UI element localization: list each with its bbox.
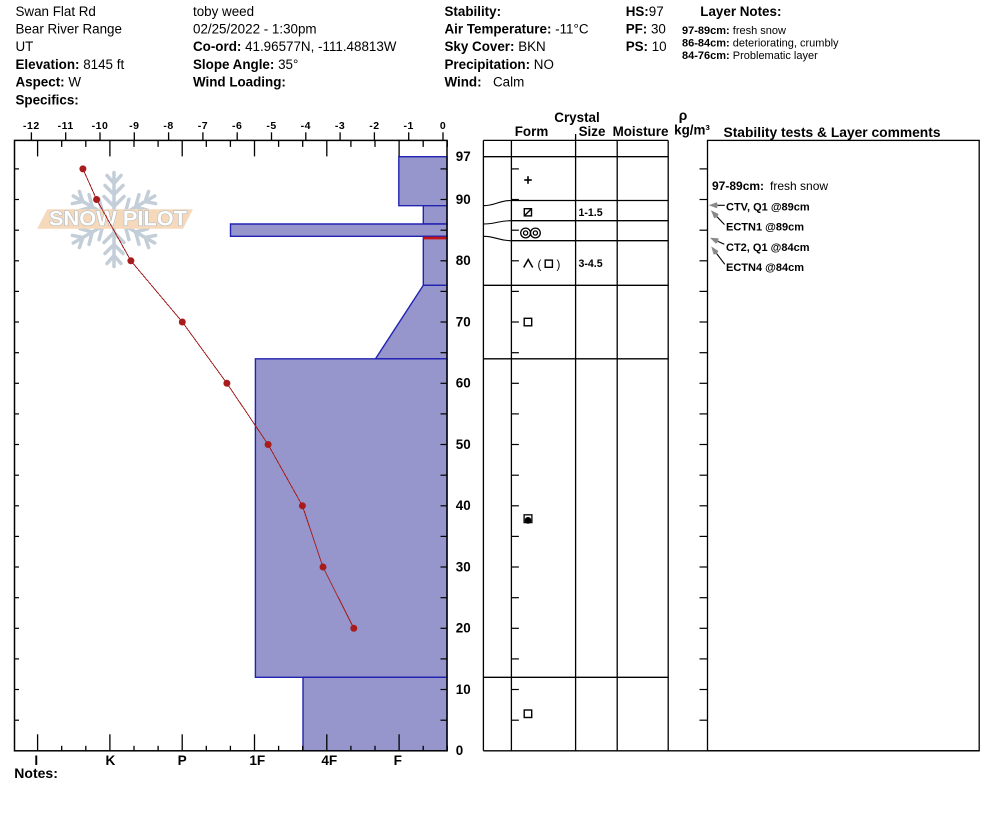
- svg-text:70: 70: [456, 314, 471, 329]
- svg-text:Elevation: 8145 ft: Elevation: 8145 ft: [16, 57, 125, 72]
- svg-text:CT2, Q1 @84cm: CT2, Q1 @84cm: [726, 242, 810, 254]
- svg-text:(: (: [538, 259, 542, 271]
- svg-text:Moisture: Moisture: [613, 124, 669, 139]
- svg-text:Precipitation: NO: Precipitation: NO: [445, 57, 554, 72]
- svg-text:HS:97: HS:97: [626, 4, 664, 19]
- svg-text:97-89cm: fresh snow: 97-89cm: fresh snow: [682, 25, 786, 37]
- svg-text:Notes:: Notes:: [14, 765, 58, 781]
- svg-text:97: 97: [456, 149, 471, 164]
- svg-text:CTV, Q1 @89cm: CTV, Q1 @89cm: [726, 202, 810, 214]
- svg-text:-8: -8: [163, 120, 173, 132]
- svg-text:Air Temperature: -11°C: Air Temperature: -11°C: [445, 22, 589, 37]
- svg-text:84-76cm: Problematic layer: 84-76cm: Problematic layer: [682, 50, 818, 62]
- svg-text:kg/m³: kg/m³: [674, 123, 710, 138]
- svg-text:toby weed: toby weed: [193, 4, 254, 19]
- svg-text:Crystal: Crystal: [554, 110, 599, 125]
- svg-text:1F: 1F: [249, 753, 265, 768]
- svg-text:-5: -5: [266, 120, 276, 132]
- svg-text:-6: -6: [232, 120, 242, 132]
- svg-text:Wind:Calm: Wind:Calm: [445, 75, 525, 90]
- svg-text:4F: 4F: [321, 753, 337, 768]
- svg-text:Slope Angle: 35°: Slope Angle: 35°: [193, 57, 298, 72]
- svg-text:40: 40: [456, 498, 471, 513]
- svg-text:Form: Form: [515, 124, 549, 139]
- svg-text:P: P: [178, 753, 187, 768]
- svg-text:K: K: [105, 753, 115, 768]
- svg-text:Bear River Range: Bear River Range: [16, 22, 122, 37]
- svg-text:PF: 30: PF: 30: [626, 22, 666, 37]
- svg-text:SNOW PILOT: SNOW PILOT: [49, 207, 187, 231]
- svg-text:3-4.5: 3-4.5: [579, 258, 603, 270]
- svg-text:UT: UT: [16, 39, 34, 54]
- svg-text:Swan Flat Rd: Swan Flat Rd: [16, 4, 96, 19]
- svg-text:): ): [557, 259, 561, 271]
- svg-text:02/25/2022 - 1:30pm: 02/25/2022 - 1:30pm: [193, 22, 317, 37]
- svg-text:-11: -11: [58, 120, 74, 132]
- svg-text:-3: -3: [335, 120, 345, 132]
- svg-text:-9: -9: [129, 120, 139, 132]
- svg-text:Stability:: Stability:: [445, 4, 502, 19]
- svg-text:Aspect: W: Aspect: W: [16, 75, 82, 90]
- svg-text:10: 10: [456, 682, 471, 697]
- svg-text:Wind Loading:: Wind Loading:: [193, 75, 286, 90]
- svg-text:Specifics:: Specifics:: [16, 92, 79, 107]
- svg-text:-2: -2: [369, 120, 379, 132]
- svg-text:86-84cm: deteriorating, crumbl: 86-84cm: deteriorating, crumbly: [682, 38, 839, 50]
- svg-text:ECTN1 @89cm: ECTN1 @89cm: [726, 222, 804, 234]
- svg-text:97-89cm:fresh snow: 97-89cm:fresh snow: [712, 179, 828, 193]
- svg-text:ECTN4 @84cm: ECTN4 @84cm: [726, 262, 804, 274]
- svg-text:-7: -7: [198, 120, 208, 132]
- svg-text:PS: 10: PS: 10: [626, 39, 667, 54]
- svg-text:1-1.5: 1-1.5: [579, 207, 603, 219]
- svg-text:90: 90: [456, 192, 471, 207]
- svg-text:ρ: ρ: [679, 108, 688, 123]
- svg-text:20: 20: [456, 621, 471, 636]
- svg-text:50: 50: [456, 437, 471, 452]
- svg-text:Stability tests & Layer commen: Stability tests & Layer comments: [724, 125, 941, 140]
- svg-text:Size: Size: [579, 124, 606, 139]
- svg-text:F: F: [394, 753, 402, 768]
- svg-text:-10: -10: [92, 120, 109, 132]
- svg-text:0: 0: [440, 120, 446, 132]
- svg-text:60: 60: [456, 376, 471, 391]
- svg-text:-12: -12: [23, 120, 40, 132]
- svg-text:-4: -4: [301, 120, 311, 132]
- svg-text:0: 0: [456, 743, 463, 758]
- svg-text:Sky Cover: BKN: Sky Cover: BKN: [445, 39, 546, 54]
- svg-text:Co-ord: 41.96577N, -111.48813W: Co-ord: 41.96577N, -111.48813W: [193, 39, 397, 54]
- svg-text:30: 30: [456, 559, 471, 574]
- svg-text:80: 80: [456, 253, 471, 268]
- svg-text:Layer Notes:: Layer Notes:: [700, 4, 781, 19]
- svg-text:-1: -1: [404, 120, 414, 132]
